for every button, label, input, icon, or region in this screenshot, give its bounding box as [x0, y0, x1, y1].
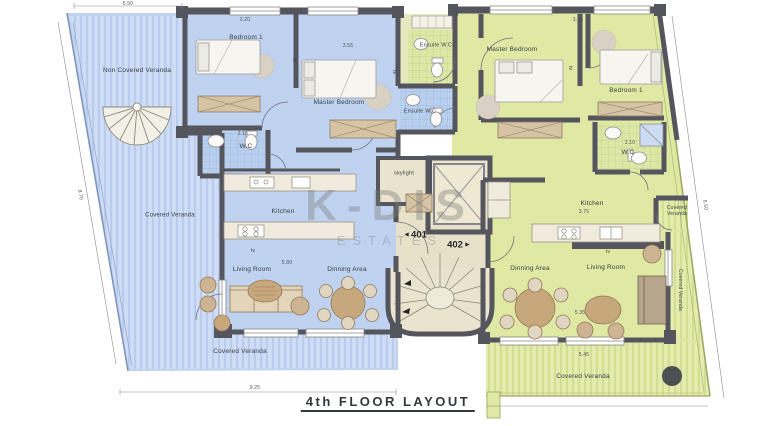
room-label-covered-veranda-left-side: Covered Veranda	[145, 212, 195, 220]
room-label-covered-veranda-right-edge: Covered Veranda	[677, 269, 683, 311]
page-title: 4th FLOOR LAYOUT	[301, 394, 475, 412]
tv-label: tv	[606, 249, 610, 255]
room-label-skylight: skylight	[394, 171, 414, 178]
dim-bedroom1-left: 3.20	[240, 17, 251, 23]
room-label-ensuite-wc-right: Ensuite W.C	[419, 43, 453, 50]
unit-402-text: 402	[447, 240, 463, 251]
room-label-wc-right: W.C	[622, 149, 635, 157]
dim-veranda-bottom-right: 5.45	[579, 352, 590, 358]
dim-bottom: 9.25	[250, 385, 261, 391]
room-label-ensuite-wc-left: Ensuite W.C	[403, 109, 437, 116]
room-label-dinning-area-left: Dinning Area	[327, 266, 367, 274]
unit-401-text: 401	[411, 230, 427, 241]
planter	[487, 392, 500, 418]
room-label-master-bedroom-right: Master Bedroom	[484, 46, 540, 54]
room-label-wc-left: W.C	[240, 143, 253, 151]
floor-plan-page: K-DIS ESTATES Non Covered Veranda Bedroo…	[0, 0, 768, 426]
floorplan-drawing	[0, 0, 768, 426]
room-label-bedroom1-right: Bedroom 1	[609, 87, 643, 95]
dim-wc-left: 2.15	[238, 131, 249, 137]
dim-living-left: 5.80	[282, 260, 293, 266]
room-label-master-bedroom-left: Master Bedroom	[313, 99, 365, 107]
unit-number-402: 402 ►	[447, 240, 471, 251]
room-label-bedroom1-left: Bedroom 1	[229, 34, 263, 42]
tv-label: tv	[251, 248, 255, 254]
dim-wc-right: 2.10	[625, 140, 636, 146]
dim-top-left: 5.50	[123, 1, 134, 7]
room-label-living-room-right: Living Room	[587, 264, 625, 272]
tv-label: tv	[567, 66, 573, 70]
room-label-kitchen-right: Kitchen	[580, 200, 603, 208]
room-label-covered-veranda-right-bottom: Covered Veranda	[556, 373, 610, 381]
door-swing-icon: ◄	[403, 232, 410, 239]
room-label-non-covered-veranda: Non Covered Veranda	[103, 67, 171, 75]
elevator-shaft	[434, 164, 484, 224]
dim-bedroom1-right: 3.15	[573, 17, 584, 23]
tv-label: tv	[391, 70, 397, 74]
tv-label: tv	[291, 58, 297, 62]
column	[662, 366, 682, 386]
dim-dining-right: 5.35	[575, 310, 586, 316]
room-label-kitchen-left: Kitchen	[271, 208, 294, 216]
door-swing-icon: ►	[464, 242, 471, 249]
room-label-dinning-area-right: Dinning Area	[510, 265, 550, 273]
dim-kitchen-right: 3.75	[579, 209, 590, 215]
unit-number-401: ◄ 401	[403, 230, 427, 241]
room-label-covered-veranda-right-side: Covered Veranda	[661, 205, 693, 218]
room-label-covered-veranda-left-bottom: Covered Veranda	[213, 348, 267, 356]
room-label-living-room-left: Living Room	[233, 266, 271, 274]
dim-master-left: 3.55	[343, 43, 354, 49]
dim-edge-right: 8.50	[701, 199, 708, 210]
